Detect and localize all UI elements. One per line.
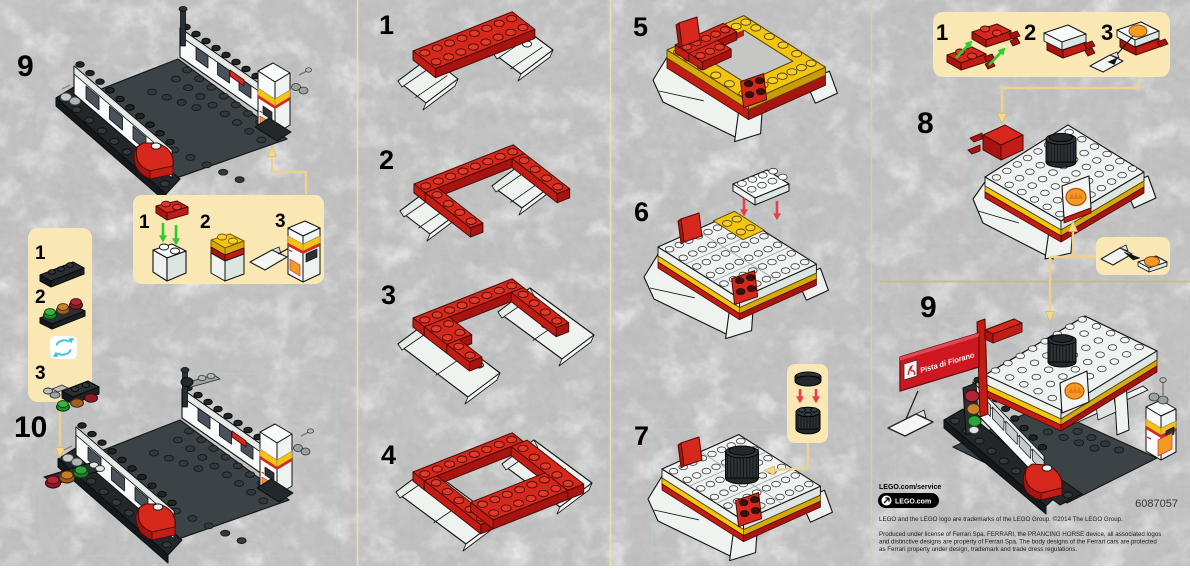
svg-text:8: 8	[917, 107, 934, 140]
svg-text:7: 7	[634, 421, 649, 451]
svg-text:3: 3	[35, 363, 46, 384]
svg-text:and distinctive designs are pr: and distinctive designs are property of …	[879, 539, 1157, 546]
svg-text:LEGO.com/service: LEGO.com/service	[879, 484, 941, 491]
svg-text:9: 9	[17, 50, 34, 83]
svg-text:2: 2	[379, 145, 394, 175]
svg-text:LEGO.com: LEGO.com	[895, 499, 931, 506]
svg-text:6: 6	[634, 197, 649, 227]
svg-text:6087057: 6087057	[1135, 498, 1178, 510]
svg-text:1: 1	[379, 10, 394, 40]
svg-text:9: 9	[920, 291, 937, 324]
svg-text:10: 10	[14, 411, 47, 444]
svg-text:3: 3	[1101, 20, 1113, 45]
svg-text:as Ferrari property under desi: as Ferrari property under design, tradem…	[879, 546, 1077, 553]
svg-text:2: 2	[35, 287, 46, 308]
svg-text:1: 1	[35, 243, 46, 264]
svg-text:3: 3	[381, 280, 396, 310]
svg-text:LEGO and the LEGO logo are tra: LEGO and the LEGO logo are trademarks of…	[879, 516, 1123, 523]
svg-text:1: 1	[936, 20, 948, 45]
svg-text:Produced under license of Ferr: Produced under license of Ferrari Spa. F…	[879, 531, 1161, 538]
svg-text:4: 4	[381, 440, 396, 470]
svg-text:2: 2	[200, 212, 211, 233]
svg-text:1: 1	[139, 212, 150, 233]
svg-text:3: 3	[275, 211, 286, 232]
svg-text:5: 5	[633, 12, 648, 42]
svg-text:2: 2	[1024, 20, 1036, 45]
